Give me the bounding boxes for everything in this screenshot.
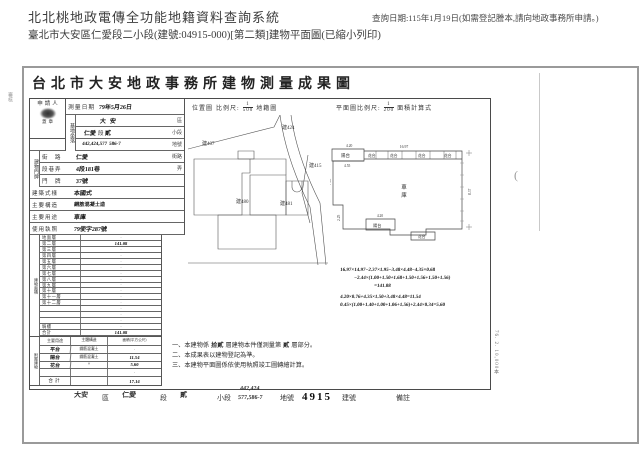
floor-label: 第三層 [40, 247, 81, 252]
strip-section-label: 段 [160, 393, 167, 403]
attached-structure: 鋼筋混凝土 [71, 354, 108, 361]
form-notes: 一、本建物係拾貳層建物本件僅測量第貳層部分。 二、本成果表以建物登記為準。 三、… [172, 341, 316, 371]
map-building-label: 建407 [202, 140, 215, 147]
map-building-label: 建415 [309, 162, 322, 169]
floor-value: 141.08 [81, 241, 161, 246]
road-curve-right [291, 115, 326, 265]
site-group-label: 基地坐落 [66, 115, 76, 151]
strip-lots-label: 地號 [280, 393, 294, 403]
strip-section-value: 仁愛 [122, 390, 137, 400]
site-section-value: 仁愛 [84, 128, 97, 137]
site-section-row: 仁愛 段 貳 小段 [76, 127, 184, 139]
site-district-value: 大安 [100, 116, 121, 125]
location-scale-suffix: 地籍圖 [256, 103, 277, 112]
balcony-bottom-label: 陽台 [373, 222, 381, 229]
note-1-handwritten-floor: 貳 [283, 341, 290, 351]
floor-label [40, 318, 81, 323]
attr-use-label: 主要用途 [30, 213, 74, 221]
flower-bottom-label: 花台 [418, 234, 426, 239]
plan-scale-fraction: 1 200 [384, 102, 395, 113]
floor-area-table: 建物面積 地面層· 第二層141.08 第三層· 第四層· 第五層· 第六層· … [30, 235, 162, 337]
floor-label [40, 306, 81, 311]
floor-label: 第五層 [40, 259, 81, 264]
location-map-drawing: 建407 建424 建415 建480 建481 [188, 115, 328, 267]
strip-district-value: 大安 [74, 390, 89, 400]
location-scale-denominator: 500 [243, 108, 254, 113]
floor-plan-drawing: 陽台 4.20 4.55 16.97 花台 花台 花台 花台 車 庫 4.20 … [330, 141, 488, 247]
building-outline [194, 159, 250, 215]
attached-use [40, 369, 71, 376]
map-building-label: 建480 [236, 198, 249, 205]
floor-label: 第六層 [40, 265, 81, 270]
building-outline [286, 181, 308, 215]
attached-row: 平台鋼筋混凝土· [40, 346, 161, 354]
printing-edition-note: 76. 2. 10,000本 [492, 330, 499, 375]
site-lots-row: 442,424,577 586-7 地號 [76, 139, 184, 151]
floor-label [40, 312, 81, 317]
floor-total-row: 合計141.08 [40, 330, 161, 336]
attached-use: 平台 [40, 346, 71, 353]
attached-group-label: 附屬建物 [30, 337, 40, 385]
parcel-line [250, 159, 286, 175]
building-outline [218, 215, 276, 249]
site-lots-suffix: 地號 [172, 141, 184, 148]
attr-style-row: 建築式樣 本國式 [30, 187, 184, 199]
address-street-row: 街 路 仁愛 街路 [40, 151, 184, 163]
area-calculations: 16.97×14.97−2.37×1.95−3.48×4.48−4.35×0.6… [340, 267, 490, 310]
floor-label: 第十一層 [40, 294, 81, 299]
floor-value: · [81, 235, 161, 240]
floor-label: 騎樓 [40, 324, 81, 329]
map-building-label: 建424 [282, 124, 295, 131]
attributes-table: 建築式樣 本國式 主要構造 鋼筋混凝土造 主要用途 車庫 使用執照 79使字28… [30, 187, 185, 235]
attr-use-row: 主要用途 車庫 [30, 211, 184, 223]
site-district-row: 大安 區 [76, 115, 184, 127]
attr-license-label: 使用執照 [30, 225, 74, 233]
main-floor-outline [333, 151, 462, 235]
plan-scale-denominator: 200 [384, 108, 395, 113]
dim-top-width: 16.97 [400, 145, 409, 149]
location-map-header: 位置圖 比例尺: 1 500 地籍圖 [192, 102, 277, 113]
formula-total-main: =141.08 [374, 283, 491, 291]
attr-use-value: 車庫 [74, 212, 87, 221]
building-outline [250, 175, 286, 215]
document-subtitle: 臺北市大安區仁愛段二小段(建號:04915-000)[第二類]建物平面圖(已縮小… [28, 27, 381, 42]
floor-label: 第十層 [40, 288, 81, 293]
floor-label: 第四層 [40, 253, 81, 258]
attached-area: 5.60 [108, 362, 161, 367]
address-street-value: 仁愛 [76, 152, 89, 161]
note-1: 一、本建物係拾貳層建物本件僅測量第貳層部分。 [172, 341, 316, 351]
floor-label: 合計 [40, 330, 81, 335]
flower-label: 花台 [444, 153, 452, 158]
floor-value: · [81, 277, 161, 282]
formula-line: −2.44×(1.00+1.50+1.68+1.50+1.56+1.50+1.5… [354, 275, 491, 283]
attached-structure [71, 369, 108, 376]
dim-balcony-top: 4.20 [346, 144, 352, 148]
site-district-suffix: 區 [177, 117, 184, 124]
floor-group-label: 建物面積 [30, 235, 40, 336]
attached-structure: 〃 [71, 362, 108, 369]
floor-value: · [81, 306, 161, 311]
flower-label: 花台 [418, 153, 426, 158]
strip-remark-label: 備註 [396, 393, 410, 403]
floor-value: · [81, 288, 161, 293]
strip-lots-value-1: 442,424 [240, 386, 260, 392]
strip-subsection-label: 小段 [217, 393, 231, 403]
attached-use: 花台 [40, 362, 71, 369]
attr-style-label: 建築式樣 [30, 189, 74, 197]
site-section-mid-label: 段 [96, 129, 105, 137]
attr-license-row: 使用執照 79使字287號 [30, 223, 184, 235]
floor-value: · [81, 253, 161, 258]
building-outline [238, 151, 254, 159]
location-scale-label: 比例尺: [216, 103, 240, 112]
applicant-stamp-smudge [40, 108, 56, 119]
floor-label: 第二層 [40, 241, 81, 246]
note-1-text: 一、本建物係 [172, 342, 209, 349]
system-title: 北北桃地政電傳全功能地籍資料查詢系統 [28, 7, 280, 26]
balcony-top-label: 陽台 [341, 152, 350, 159]
dim-left-upper: 7.05 [330, 179, 332, 185]
strip-lots-value-2: 577,586-7 [238, 395, 263, 401]
site-subsection-value: 貳 [104, 128, 111, 137]
scan-artifact-mark: ( [514, 168, 518, 183]
attached-total-label: 合計 [40, 377, 71, 385]
floor-label: 地面層 [40, 235, 81, 240]
note-1-text: 層部分。 [291, 342, 316, 349]
location-map-label: 位置圖 [192, 103, 213, 112]
empty-cell [30, 139, 66, 151]
floor-label: 第九層 [40, 283, 81, 288]
margin-review-note: 審核 [6, 92, 13, 102]
address-lane-row: 段巷弄 4段181巷 弄 [40, 163, 184, 175]
attached-structure [71, 377, 108, 385]
dim-balcony-inner: 4.55 [344, 164, 350, 168]
floor-value: · [81, 324, 161, 329]
query-date: 查詢日期:115年1月19日(如需登記謄本,請向地政事務所申請。) [372, 12, 599, 24]
formula-line: 16.97×14.97−2.37×1.95−3.48×4.48−4.35×0.6… [340, 267, 491, 275]
address-door-value: 37號 [76, 176, 89, 185]
site-section-suffix: 小段 [172, 129, 184, 136]
strip-district-label: 區 [102, 393, 109, 403]
plan-scale-suffix: 面積計算式 [397, 103, 432, 112]
floor-total-value: 141.08 [81, 330, 161, 335]
address-door-row: 門 牌 37號 [40, 175, 184, 187]
formula-flowerbed: 0.45×(1.00+1.40+1.00+1.06+1.56)+2.44×0.3… [340, 302, 491, 310]
site-lots-value-2: 586-7 [109, 142, 121, 147]
attr-structure-label: 主要構造 [30, 201, 74, 209]
scan-artifact-line [539, 73, 540, 231]
attached-total-value: 17.14 [108, 379, 161, 384]
survey-date-row: 測量日期 79年5月26日 [66, 99, 184, 115]
attached-row: · [40, 369, 161, 377]
attached-header-use: 主要用途 [40, 337, 71, 345]
attached-header-area: 面積(平方公尺) [108, 338, 161, 343]
address-lane-value: 4段181巷 [76, 164, 101, 173]
applicant-cell: 申請人 蓋章 [30, 99, 66, 139]
attached-row: 陽台鋼筋混凝土11.54 [40, 354, 161, 362]
floor-value: · [81, 294, 161, 299]
floor-value: · [81, 283, 161, 288]
dim-left-lower: 2.25 [337, 215, 341, 221]
strip-subsection-value: 貳 [180, 390, 188, 400]
note-2: 二、本成果表以建物登記為準。 [172, 351, 316, 361]
scanned-sheet: 台北市大安地政事務所建物測量成果圖 段二小段 10/5 申請人 蓋章 測量日期 … [22, 66, 639, 444]
address-table: 建物門牌 街 路 仁愛 街路 段巷弄 4段181巷 弄 門 牌 37號 [30, 151, 185, 187]
flower-label: 花台 [390, 153, 398, 158]
attached-row: 花台〃5.60 [40, 362, 161, 370]
floor-label: 第七層 [40, 271, 81, 276]
floor-value: · [81, 259, 161, 264]
attached-header-structure: 主體構造 [71, 337, 108, 345]
floor-label: 第十二層 [40, 300, 81, 305]
attached-header-row: 主要用途 主體構造 面積(平方公尺) [40, 337, 161, 346]
note-3: 三、本建物平面圖係依使用執照竣工圖轉繪計算。 [172, 361, 316, 371]
strip-building-number-label: 建號 [342, 393, 356, 403]
floor-value: · [81, 318, 161, 323]
survey-date-value: 79年5月26日 [99, 102, 133, 111]
address-lane-suffix: 弄 [177, 165, 184, 172]
address-street-label: 街 路 [40, 153, 76, 161]
attached-buildings-table: 附屬建物 主要用途 主體構造 面積(平方公尺) 平台鋼筋混凝土· 陽台鋼筋混凝土… [30, 337, 162, 386]
garage-label-char2: 庫 [401, 191, 407, 199]
attr-style-value: 本國式 [74, 188, 93, 197]
attached-structure: 鋼筋混凝土 [71, 346, 108, 353]
attr-license-value: 79使字287號 [74, 224, 108, 233]
note-1-handwritten-floors: 拾貳 [211, 341, 224, 351]
formula-balcony: 4.20×0.76+4.35×1.50+3.48×4.48=11.54 [340, 294, 491, 302]
site-lots-value-1: 442,424,577 [82, 142, 107, 147]
attached-total-row: 合計17.14 [40, 377, 161, 385]
survey-date-label: 測量日期 [66, 102, 95, 111]
dim-balcony-bottom: 4.20 [377, 214, 383, 218]
applicant-stamp-label: 蓋章 [30, 119, 65, 125]
map-building-label: 建481 [280, 200, 293, 207]
garage-label-char1: 車 [401, 183, 407, 191]
attached-area: · [108, 370, 161, 375]
floor-plan-header: 平面圖比例尺: 1 200 面積計算式 [336, 102, 432, 113]
attached-use: 陽台 [40, 354, 71, 361]
upper-table: 測量日期 79年5月26日 基地坐落 大安 區 仁愛 段 貳 小段 [66, 99, 185, 151]
flower-label: 花台 [368, 153, 376, 158]
address-street-suffix: 街路 [172, 153, 184, 160]
address-lane-label: 段巷弄 [40, 165, 76, 173]
address-group-label: 建物門牌 [30, 151, 40, 187]
floor-value: · [81, 312, 161, 317]
attr-structure-value: 鋼筋混凝土造 [74, 201, 106, 208]
plan-scale-label: 平面圖比例尺: [336, 103, 381, 112]
survey-map-title: 台北市大安地政事務所建物測量成果圖 [32, 73, 355, 93]
floor-value: · [81, 271, 161, 276]
note-1-text: 層建物本件僅測量第 [226, 342, 282, 349]
attached-area: · [108, 347, 161, 352]
floor-label: 第八層 [40, 277, 81, 282]
attached-area: 11.54 [108, 355, 161, 360]
dim-right-height: 8.37 [468, 189, 472, 195]
attr-structure-row: 主要構造 鋼筋混凝土造 [30, 199, 184, 211]
floor-value: · [81, 247, 161, 252]
location-scale-fraction: 1 500 [243, 102, 254, 113]
strip-building-number: 4915 [302, 391, 332, 403]
floor-value: · [81, 265, 161, 270]
applicant-label: 申請人 [30, 99, 65, 107]
address-door-label: 門 牌 [40, 177, 76, 185]
floor-value: · [81, 300, 161, 305]
survey-form: 申請人 蓋章 測量日期 79年5月26日 基地坐落 大安 區 仁愛 [29, 98, 491, 390]
